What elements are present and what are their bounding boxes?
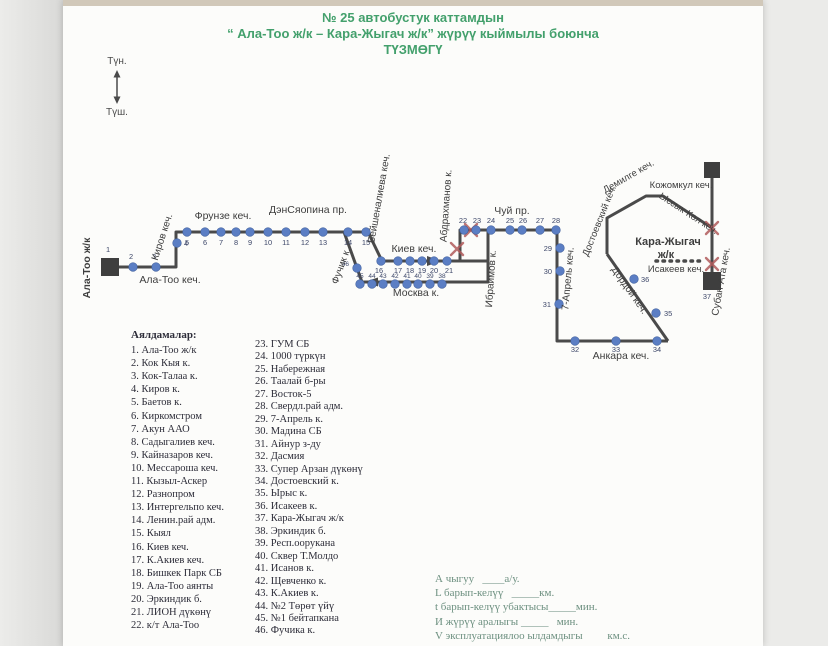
stop-number-label: 11 [282,238,290,247]
scan-margin-left [0,0,63,646]
map-stop-dot [394,257,403,266]
list-line: 42. Щевченко к. [255,576,363,588]
map-stop-dot [653,337,662,346]
list-line: 33. Супер Арзан дүкөнү [255,464,363,476]
stop-number-label: 8 [234,238,238,247]
stop-number-label: 44 [368,273,376,280]
stop-number-label: 25 [506,216,514,225]
terminal-square [704,162,720,178]
stop-number-label: 21 [445,266,453,275]
stop-number-label: 41 [403,273,411,280]
stops-list-items-1: 1. Ала-Тоо ж/к2. Кок Кыя к.3. Кок-Талаа … [131,344,224,632]
list-line: 1. Ала-Тоо ж/к [131,344,224,357]
list-line: 9. Кайназаров кеч. [131,449,224,462]
street-label: Исакеев кеч. [648,264,704,275]
list-line: 23. ГУМ СБ [255,339,363,351]
stop-number-label: 24 [487,216,495,225]
list-line: 25. Набережная [255,364,363,376]
street-label: Киров кеч. [150,213,175,262]
map-stop-dot [217,228,226,237]
street-label: ж/к [657,249,675,261]
list-line: 37. Кара-Жыгач ж/к [255,513,363,525]
map-stop-dot [430,257,439,266]
list-line: 17. К.Акиев кеч. [131,554,224,567]
stop-number-label: 23 [473,216,481,225]
stop-number-label: 5 [185,238,189,247]
list-line: 5. Баетов к. [131,396,224,409]
title-line-3: ТҮЗМӨГҮ [63,42,763,58]
list-line: 46. Фучика к. [255,625,363,637]
list-line: 18. Бишкек Парк СБ [131,567,224,580]
title-line-1: № 25 автобустук каттамдын [63,10,763,26]
list-line: 19. Ала-Тоо аянты [131,580,224,593]
street-label: Анкара кеч. [593,350,650,362]
document-page: № 25 автобустук каттамдын “ Ала-Тоо ж/к … [63,0,763,646]
map-stop-dot [319,228,328,237]
street-label: Фучик к. [330,247,353,286]
list-line: 24. 1000 түркүн [255,351,363,363]
street-label: Чуй пр. [494,205,529,217]
compass-north-label: Түн. [91,56,143,67]
list-line: А чыгуу ____а/у. [435,572,630,586]
map-stop-dot [460,226,469,235]
list-line: 7. Акун ААО [131,423,224,436]
list-line: 29. 7-Апрель к. [255,414,363,426]
map-stop-dot [443,257,452,266]
stop-number-label: 32 [571,345,579,354]
street-label: Кара-Жыгач [635,236,701,248]
map-stop-dot [487,226,496,235]
list-line: 34. Достоевский к. [255,476,363,488]
list-line: 28. Свердл.рай адм. [255,401,363,413]
list-line: 40. Сквер Т.Молдо [255,551,363,563]
stop-number-label: 2 [129,252,133,261]
map-stop-dot [201,228,210,237]
route-parameters-form: А чыгуу ____а/у.L барып-келүү _____км.t … [435,572,630,643]
list-line: 45. №1 бейтапкана [255,613,363,625]
stops-list-items-2: 23. ГУМ СБ24. 1000 түркүн25. Набережная2… [255,339,363,638]
list-line: 21. ЛИОН дүкөнү [131,606,224,619]
street-label: Бейшеналиева кеч. [366,153,393,244]
street-label: Ала-Тоо ж/к [81,237,93,298]
map-stop-dot [246,228,255,237]
street-label: Киев кеч. [392,243,437,255]
map-stop-dot [418,257,427,266]
map-stop-dot [472,226,481,235]
list-line: 30. Мадина СБ [255,426,363,438]
stop-number-label: 12 [301,238,309,247]
list-line: 14. Ленин.рай адм. [131,514,224,527]
list-line: 43. К.Акиев к. [255,588,363,600]
list-line: 31. Айнур з-ду [255,439,363,451]
list-line: 11. Кызыл-Аскер [131,475,224,488]
map-stop-dot [518,226,527,235]
list-line: 16. Киев кеч. [131,541,224,554]
stop-number-label: 27 [536,216,544,225]
street-label: Демилге кеч. [601,158,656,196]
map-stop-dot [652,309,661,318]
map-stop-dot [377,257,386,266]
stop-number-label: 26 [519,216,527,225]
list-line: 2. Кок Кыя к. [131,357,224,370]
stops-list-header: Аялдамалар: [131,329,224,342]
map-stop-dot [630,275,639,284]
street-label: Фрунзе кеч. [195,210,252,222]
document-title: № 25 автобустук каттамдын “ Ала-Тоо ж/к … [63,10,763,58]
stop-number-label: 34 [653,345,661,354]
compass: Түн. Түш. [91,56,143,118]
map-stop-dot [353,264,362,273]
stop-number-label: 13 [319,238,327,247]
scanned-route-document: № 25 автобустук каттамдын “ Ала-Тоо ж/к … [0,0,828,646]
stop-number-label: 36 [641,275,649,284]
list-line: L барып-келүү _____км. [435,586,630,600]
stop-number-label: 37 [703,292,711,301]
map-stop-dot [344,228,353,237]
map-stop-dot [264,228,273,237]
map-stop-dot [282,228,291,237]
map-stop-dot [301,228,310,237]
stop-number-label: 7 [219,238,223,247]
list-line: 35. Ырыс к. [255,488,363,500]
map-stop-dot [406,257,415,266]
street-label: Дордой кеч. [609,265,650,317]
street-label: Ибраимов к. [483,250,499,308]
list-line: 26. Таалай б-ры [255,376,363,388]
map-stop-dot [173,239,182,248]
street-label: ДэнСяопина пр. [269,204,347,216]
list-line: V эксплуатациялоо ылдамдыгы км.с. [435,629,630,643]
map-stop-dot [571,337,580,346]
street-label: 7-Апрель кеч. [560,247,576,311]
street-label: Москва к. [393,287,439,299]
stop-number-label: 1 [106,245,110,254]
map-stop-dot [232,228,241,237]
list-line: И жүрүү аралыгы _____ мин. [435,615,630,629]
stops-list-column-2: 23. ГУМ СБ24. 1000 түркүн25. Набережная2… [255,339,363,638]
list-line: 27. Восток-5 [255,389,363,401]
list-line: 36. Исакеев к. [255,501,363,513]
list-line: 22. к/т Ала-Тоо [131,619,224,632]
stop-number-label: 30 [544,267,552,276]
map-stop-dot [612,337,621,346]
map-stop-dot [129,263,138,272]
list-line: 6. Киркомстром [131,410,224,423]
street-label: Кожомкул кеч. [650,180,713,191]
list-line: 4. Киров к. [131,383,224,396]
map-stop-dot [552,226,561,235]
stop-number-label: 6 [203,238,207,247]
street-label: Абдрахманов к. [437,169,454,242]
stop-number-label: 9 [248,238,252,247]
stop-number-label: 35 [664,309,672,318]
list-line: 38. Эркиндик б. [255,526,363,538]
list-line: 3. Кок-Талаа к. [131,370,224,383]
list-line: 41. Исанов к. [255,563,363,575]
list-line: 39. Респ.оорукана [255,538,363,550]
map-stop-dot [183,228,192,237]
street-label: Ала-Тоо кеч. [139,274,200,286]
scan-margin-right [763,0,828,646]
map-stop-dot [506,226,515,235]
list-line: 13. Интергельпо кеч. [131,501,224,514]
stop-number-label: 28 [552,216,560,225]
list-line: 32. Дасмия [255,451,363,463]
stop-number-label: 38 [438,273,446,280]
map-stop-dot [379,280,388,289]
stop-number-label: 45 [356,273,364,280]
list-line: t барып-келүү убактысы_____мин. [435,600,630,614]
stop-number-label: 31 [543,300,551,309]
map-stop-dot [152,263,161,272]
list-line: 10. Мессароша кеч. [131,462,224,475]
list-line: 44. №2 Төрөт үйү [255,601,363,613]
stop-number-label: 22 [459,216,467,225]
title-line-2: “ Ала-Тоо ж/к – Кара-Жыгач ж/к” жүрүү кы… [63,26,763,42]
stop-number-label: 40 [414,273,422,280]
compass-arrow-icon [109,70,125,104]
stop-number-label: 42 [391,273,399,280]
stop-number-label: 10 [264,238,272,247]
street-label: Ыссык-Көл кеч. [657,191,720,237]
stop-number-label: 14 [344,238,352,247]
scan-edge-strip [63,0,763,6]
map-stop-dot [536,226,545,235]
stops-list-column-1: Аялдамалар: 1. Ала-Тоо ж/к2. Кок Кыя к.3… [131,329,224,632]
stop-number-label: 43 [379,273,387,280]
compass-south-label: Түш. [91,107,143,118]
stop-number-label: 39 [426,273,434,280]
map-stop-dot [356,280,365,289]
list-line: 20. Эркиндик б. [131,593,224,606]
map-stop-dot [368,280,377,289]
stop-number-label: 29 [544,244,552,253]
map-stop-dot [556,244,565,253]
list-line: 12. Разнопром [131,488,224,501]
terminal-square [101,258,119,276]
list-line: 15. Кыял [131,527,224,540]
street-label: Достоевский кеч. [580,184,618,258]
list-line: 8. Садыгалиев кеч. [131,436,224,449]
